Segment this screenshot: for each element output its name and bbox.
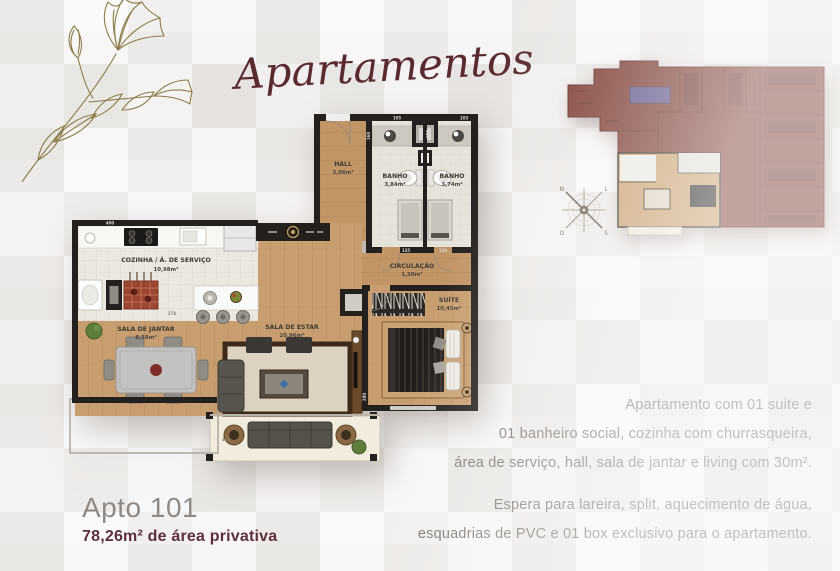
dim-160: 160 xyxy=(366,132,371,141)
room-area-suite: 10,45m² xyxy=(436,305,462,312)
compass-label-l: L xyxy=(604,186,608,193)
room-area-banho1: 3,84m² xyxy=(384,181,406,188)
page-title: Apartamentos xyxy=(233,34,535,99)
dim-103: 103 xyxy=(460,116,469,121)
dim-274: 274 xyxy=(168,311,177,316)
room-area-estar: 20,96m² xyxy=(279,332,305,339)
compass-label-s: S xyxy=(604,230,608,237)
keyplan-car xyxy=(630,87,670,103)
room-label-banho1: BANHO xyxy=(382,173,407,180)
room-label-banho2: BANHO xyxy=(439,173,464,180)
room-label-estar: SALA DE ESTAR xyxy=(265,324,319,331)
room-area-banho2: 3,74m² xyxy=(441,181,463,188)
room-area-hall: 3,06m² xyxy=(332,169,354,176)
dim-130: 130 xyxy=(439,248,448,253)
apartment-description: Apartamento com 01 suite e 01 banheiro s… xyxy=(332,391,812,562)
description-paragraph-1: Apartamento com 01 suite e 01 banheiro s… xyxy=(332,391,812,478)
compass-rose-icon: N L O S xyxy=(554,180,614,240)
dim-115: 115 xyxy=(425,130,430,139)
description-paragraph-2: Espera para lareira, split, aquecimento … xyxy=(332,491,812,549)
brochure-page: Apartamentos xyxy=(0,0,840,571)
room-label-cozinha: COZINHA / Á. DE SERVIÇO xyxy=(121,255,211,264)
keyplan-highlighted-unit xyxy=(618,153,720,235)
room-area-circulacao: 1,50m² xyxy=(401,271,423,278)
dim-400: 400 xyxy=(106,221,115,226)
room-area-jantar: 8,58m² xyxy=(135,334,157,341)
dim-135: 135 xyxy=(402,248,411,253)
room-label-hall: HALL xyxy=(334,161,352,168)
dim-410: 410 xyxy=(222,437,231,442)
room-label-circulacao: CIRCULAÇÃO xyxy=(390,261,435,270)
room-label-suite: SUÍTE xyxy=(439,295,459,304)
room-area-cozinha: 10,98m² xyxy=(153,266,179,273)
private-area-label: 78,26m² de área privativa xyxy=(82,528,277,546)
cooktop xyxy=(124,228,158,246)
island-stools xyxy=(197,311,250,324)
compass-label-n: N xyxy=(560,186,565,193)
apto-number: Apto 101 xyxy=(82,492,198,524)
dim-105: 105 xyxy=(393,116,402,121)
compass-label-o: O xyxy=(560,230,565,237)
sofa-left xyxy=(218,360,244,412)
room-label-jantar: SALA DE JANTAR xyxy=(117,326,174,333)
